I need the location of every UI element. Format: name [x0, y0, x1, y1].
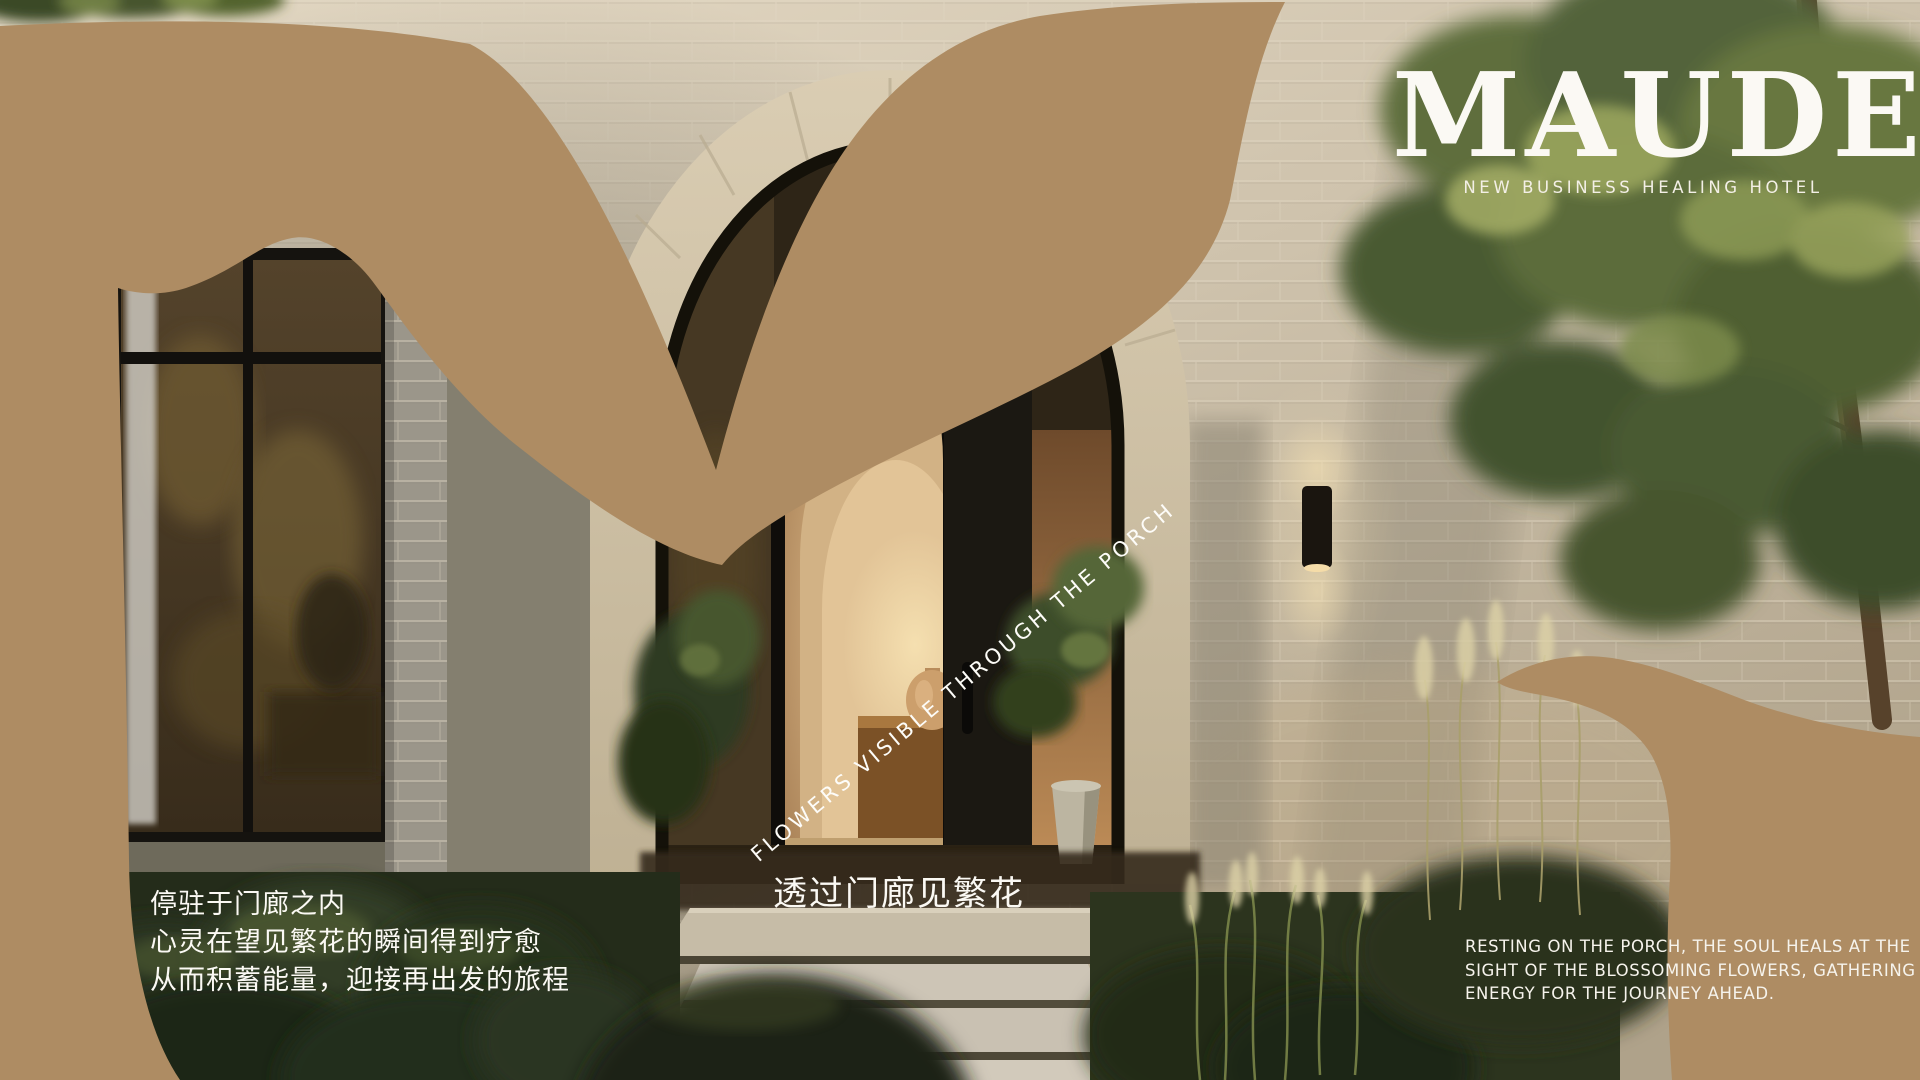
body-zh-line-2: 心灵在望见繁花的瞬间得到疗愈 [150, 924, 570, 962]
body-en-line-2: SIGHT OF THE BLOSSOMING FLOWERS, GATHERI… [1465, 959, 1916, 983]
hotel-poster: MAUDE NEW BUSINESS HEALING HOTEL FLOWERS… [0, 0, 1920, 1080]
body-paragraph-zh: 停驻于门廊之内 心灵在望见繁花的瞬间得到疗愈 从而积蓄能量，迎接再出发的旅程 [150, 886, 570, 1000]
wall-sconce [1232, 375, 1402, 685]
body-zh-line-1: 停驻于门廊之内 [150, 886, 570, 924]
body-en-line-1: RESTING ON THE PORCH, THE SOUL HEALS AT … [1465, 935, 1916, 959]
body-paragraph-en: RESTING ON THE PORCH, THE SOUL HEALS AT … [1465, 935, 1916, 1006]
body-zh-line-3: 从而积蓄能量，迎接再出发的旅程 [150, 962, 570, 1000]
brand-logo: MAUDE [1392, 58, 1894, 174]
brand-tagline: NEW BUSINESS HEALING HOTEL [1392, 178, 1894, 197]
body-en-line-3: ENERGY FOR THE JOURNEY AHEAD. [1465, 982, 1916, 1006]
headline-zh: 透过门廊见繁花 [773, 866, 1025, 915]
